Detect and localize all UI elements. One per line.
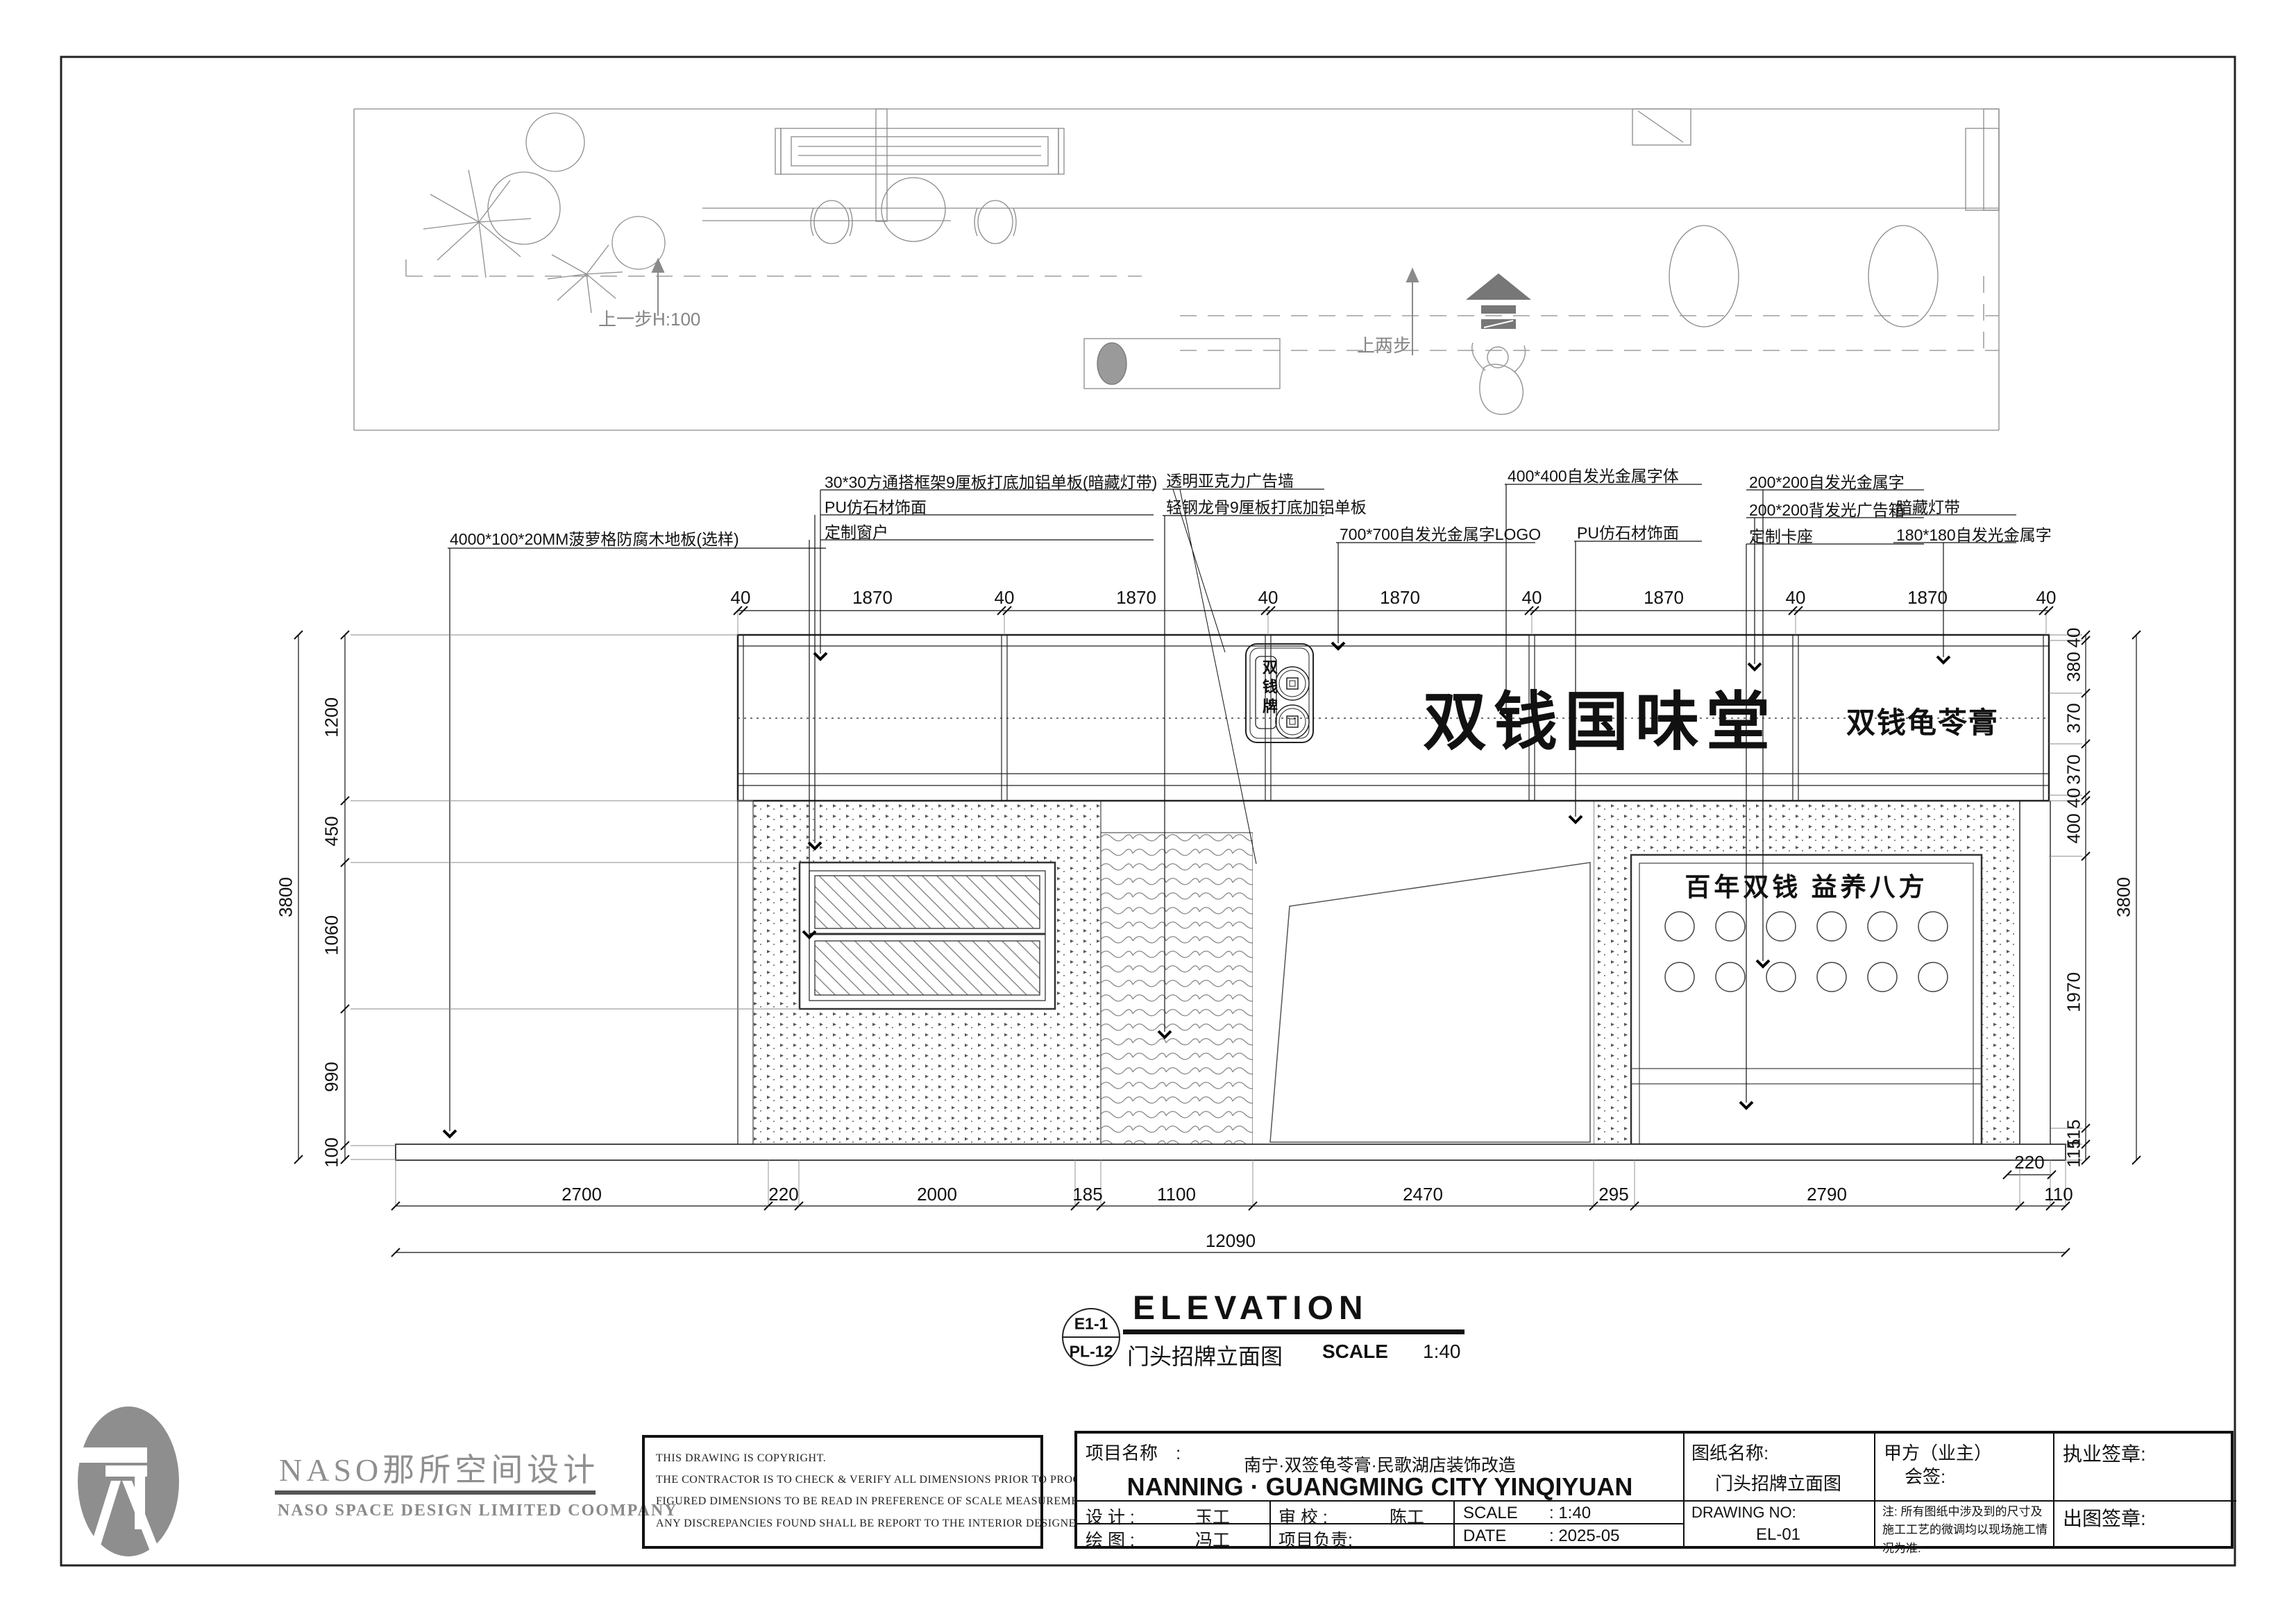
signature2-label: 出图签章: bbox=[2063, 1504, 2146, 1531]
dim-label: 2700 bbox=[562, 1184, 602, 1205]
date-value: : 2025-05 bbox=[1549, 1527, 1619, 1546]
signature1-label: 执业签章: bbox=[2063, 1439, 2146, 1467]
project-name-en: NANNING · GUANGMING CITY YINQIYUAN bbox=[1127, 1472, 1633, 1502]
annotation-180-letters: 180*180自发光金属字 bbox=[1896, 522, 2052, 545]
drawingno-label: DRAWING NO: bbox=[1691, 1504, 1796, 1522]
annotation-400-letters: 400*400自发光金属字体 bbox=[1508, 463, 1679, 486]
annotation-window: 定制窗户 bbox=[825, 519, 888, 543]
designer-label: 设 计 : bbox=[1086, 1504, 1135, 1529]
designer-value: 玉工 bbox=[1195, 1504, 1230, 1529]
elevation-ref-bottom: PL-12 bbox=[1070, 1343, 1113, 1361]
plants bbox=[423, 113, 665, 313]
dim-label: 2470 bbox=[1403, 1184, 1443, 1205]
dim-label: 1870 bbox=[1907, 587, 1948, 609]
plan-view-linework bbox=[354, 109, 1999, 430]
display-box-title: 百年双钱 益养八方 bbox=[1631, 866, 1982, 903]
dim-label: 1200 bbox=[321, 697, 343, 738]
annotation-booth: 定制卡座 bbox=[1749, 523, 1813, 547]
annotation-pu-stone-right: PU仿石材饰面 bbox=[1577, 520, 1679, 543]
dim-label: 40 bbox=[1786, 587, 1806, 609]
annotation-hidden-strip: 暗藏灯带 bbox=[1896, 494, 1960, 518]
elevation-ref-top: E1-1 bbox=[1074, 1315, 1108, 1334]
dim-label: 1870 bbox=[852, 587, 893, 609]
dim-label: 1870 bbox=[1644, 587, 1684, 609]
copyright-line: THIS DRAWING IS COPYRIGHT. bbox=[656, 1447, 1029, 1469]
copyright-line: FIGURED DIMENSIONS TO BE READ IN PREFERE… bbox=[656, 1490, 1029, 1512]
elevation-title: ELEVATION bbox=[1133, 1289, 1369, 1327]
dim-label: 40 bbox=[1522, 587, 1542, 609]
plan-step1-label: 上一步H:100 bbox=[598, 305, 700, 331]
annotation-frame: 30*30方通搭框架9厘板打底加铝单板(暗藏灯带) bbox=[825, 469, 1157, 493]
date-label: DATE bbox=[1463, 1527, 1506, 1546]
title-block: 项目名称 : 南宁·双签龟苓膏·民歌湖店装饰改造 NANNING · GUANG… bbox=[1074, 1431, 2234, 1549]
annotation-acrylic: 透明亚克力广告墙 bbox=[1166, 468, 1294, 491]
naso-divider bbox=[275, 1490, 596, 1495]
dim-label: 2790 bbox=[1807, 1184, 1847, 1205]
drafter-value: 冯工 bbox=[1195, 1527, 1230, 1552]
plan-step2-label: 上两步 bbox=[1357, 332, 1411, 357]
dim-total-label: 12090 bbox=[1206, 1230, 1256, 1252]
annotation-lightbox: 200*200背发光广告箱 bbox=[1749, 497, 1905, 520]
dim-label: 1060 bbox=[321, 915, 343, 955]
logo-vertical-text: 双钱牌 bbox=[1258, 659, 1280, 729]
client-sign-label: 会签: bbox=[1905, 1463, 1945, 1488]
dim-label: 185 bbox=[1072, 1184, 1102, 1205]
sign-main-text: 双钱国味堂 bbox=[1423, 670, 1777, 763]
sheetname-value: 门头招牌立面图 bbox=[1715, 1470, 1841, 1495]
pm-label: 项目负责: bbox=[1278, 1527, 1353, 1552]
cad-linework bbox=[0, 0, 2296, 1623]
elevation-title-cn: 门头招牌立面图 bbox=[1127, 1339, 1283, 1371]
dim-label: 380 bbox=[2063, 652, 2085, 681]
drawing-sheet: 上一步H:100 上两步 4000*100*20MM菠萝格防腐木地板(选样) 3… bbox=[0, 0, 2296, 1623]
scale-label: SCALE bbox=[1463, 1504, 1518, 1523]
drafter-label: 绘 图 : bbox=[1086, 1527, 1135, 1552]
checker-label: 审 校 : bbox=[1278, 1504, 1328, 1529]
dim-label: 40 bbox=[2063, 628, 2085, 648]
elevation-scale-value: 1:40 bbox=[1423, 1341, 1461, 1363]
copyright-box: THIS DRAWING IS COPYRIGHT. THE CONTRACTO… bbox=[642, 1435, 1043, 1549]
dim-label: 370 bbox=[2063, 754, 2085, 784]
copyright-line: THE CONTRACTOR IS TO CHECK & VERIFY ALL … bbox=[656, 1469, 1029, 1490]
dim-label: 220 bbox=[768, 1184, 798, 1205]
dim-label: 40 bbox=[995, 587, 1015, 609]
dim-label: 100 bbox=[321, 1137, 343, 1167]
annotation-pu-stone-left: PU仿石材饰面 bbox=[825, 494, 927, 518]
titleblock-note: 注: 所有图纸中涉及到的尺寸及施工工艺的微调均以现场施工情况为准. bbox=[1882, 1503, 2050, 1558]
naso-logo bbox=[76, 1407, 179, 1556]
annotation-200-letters: 200*200自发光金属字 bbox=[1749, 469, 1905, 493]
vent-symbol bbox=[1466, 273, 1531, 329]
dim-label: 370 bbox=[2063, 703, 2085, 733]
dim-label: 1870 bbox=[1116, 587, 1156, 609]
sheetname-label: 图纸名称: bbox=[1691, 1439, 1769, 1465]
checker-value: 陈工 bbox=[1390, 1504, 1424, 1529]
dim-label: 295 bbox=[1598, 1184, 1628, 1205]
dim-label: 400 bbox=[2063, 813, 2085, 843]
dim-label: 40 bbox=[2036, 587, 2057, 609]
dim-label: 450 bbox=[321, 816, 343, 846]
naso-name-cn: NASO那所空间设计 bbox=[279, 1445, 599, 1490]
dim-total-label: 3800 bbox=[276, 877, 297, 917]
dim-label: 2000 bbox=[917, 1184, 957, 1205]
step-arrows bbox=[652, 260, 1418, 355]
project-label: 项目名称 : bbox=[1086, 1439, 1181, 1465]
elevation-scale-label: SCALE bbox=[1322, 1341, 1388, 1363]
naso-name-en: NASO SPACE DESIGN LIMITED COOMPANY bbox=[278, 1502, 678, 1520]
dim-label: 1100 bbox=[1157, 1184, 1196, 1205]
dim-label: 110 bbox=[2044, 1184, 2073, 1205]
sign-sub-text: 双钱龟苓膏 bbox=[1846, 699, 1999, 742]
dim-label: 115 bbox=[2063, 1139, 2085, 1167]
copyright-line: ANY DISCREPANCIES FOUND SHALL BE REPORT … bbox=[656, 1513, 1029, 1534]
client-label: 甲方（业主） bbox=[1884, 1439, 1992, 1465]
dim-label: 1970 bbox=[2063, 972, 2085, 1012]
person-figure bbox=[1472, 343, 1526, 414]
dim-label: 40 bbox=[2063, 788, 2085, 808]
dim-label: 220 bbox=[2014, 1152, 2044, 1173]
drawingno-value: EL-01 bbox=[1756, 1525, 1800, 1545]
dim-label: 40 bbox=[1258, 587, 1278, 609]
annotation-steel-keel: 轻钢龙骨9厘板打底加铝单板 bbox=[1166, 494, 1367, 518]
dim-label: 40 bbox=[731, 587, 751, 609]
dim-label: 1870 bbox=[1380, 587, 1420, 609]
dim-total-label: 3800 bbox=[2113, 877, 2135, 917]
annotation-logo-letters: 700*700自发光金属字LOGO bbox=[1340, 521, 1541, 545]
annotation-floor: 4000*100*20MM菠萝格防腐木地板(选样) bbox=[450, 526, 739, 550]
scale-value: : 1:40 bbox=[1549, 1504, 1591, 1523]
dim-label: 990 bbox=[321, 1062, 343, 1091]
